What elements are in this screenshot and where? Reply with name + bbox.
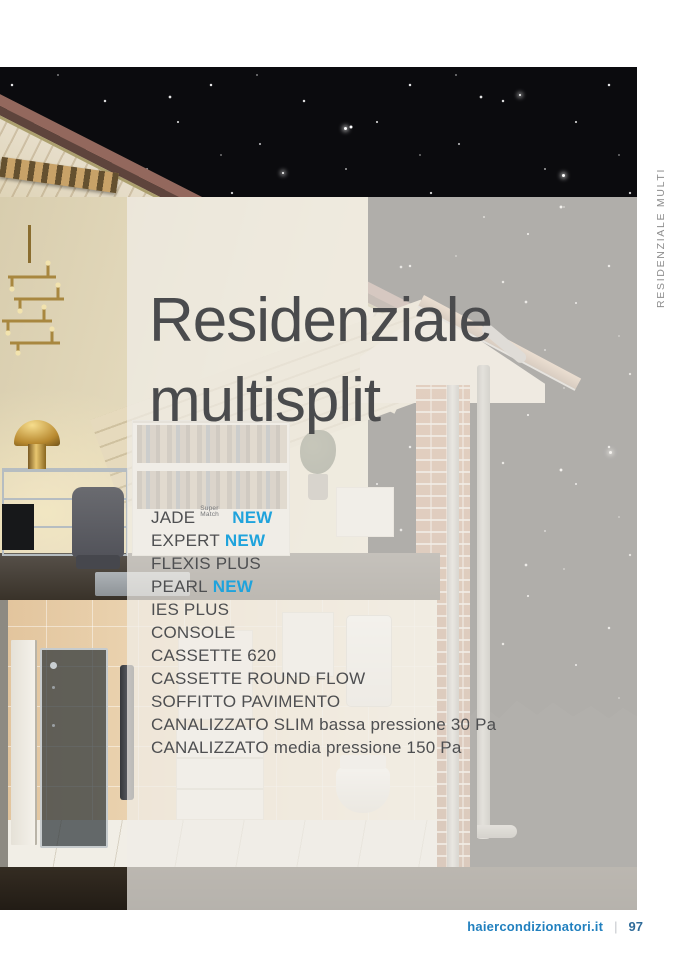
product-list: JADESuper MatchNEW EXPERTNEW FLEXIS PLUS… <box>151 506 496 759</box>
product-name: CANALIZZATO <box>151 738 269 757</box>
product-name: CASSETTE 620 <box>151 646 276 665</box>
side-section-label: RESIDENZIALE MULTI <box>655 168 667 308</box>
footer: haiercondizionatori.it | 97 <box>467 919 643 934</box>
website-link[interactable]: haiercondizionatori.it <box>467 919 603 934</box>
product-name: EXPERT <box>151 531 220 550</box>
dark-screen <box>2 504 34 550</box>
bathroom-door <box>11 640 37 845</box>
house-cross-section-photo <box>0 67 637 910</box>
page-number: 97 <box>629 919 643 934</box>
product-list-item: EXPERTNEW <box>151 529 496 552</box>
gold-lamp-base <box>28 444 46 469</box>
page-title-line2: multisplit <box>149 361 492 441</box>
product-list-item: CASSETTE ROUND FLOW <box>151 667 496 690</box>
product-list-item: CONSOLE <box>151 621 496 644</box>
bright-star <box>282 172 284 174</box>
product-list-item: CANALIZZATOmedia pressione 150 Pa <box>151 736 496 759</box>
product-list-item: CANALIZZATO SLIMbassa pressione 30 Pa <box>151 713 496 736</box>
product-name: FLEXIS PLUS <box>151 554 261 573</box>
product-name: JADE <box>151 508 195 527</box>
page-title-line1: Residenziale <box>149 281 492 361</box>
new-badge: NEW <box>232 508 272 527</box>
product-superscript: Super Match <box>200 506 227 518</box>
armchair <box>72 487 124 557</box>
footer-separator: | <box>614 919 617 934</box>
product-name: CANALIZZATO SLIM <box>151 715 314 734</box>
product-list-item: CASSETTE 620 <box>151 644 496 667</box>
product-list-item: PEARLNEW <box>151 575 496 598</box>
new-badge: NEW <box>225 531 265 550</box>
bright-star <box>562 174 565 177</box>
product-detail: media pressione 150 Pa <box>274 738 462 757</box>
brass-chandelier <box>0 225 70 365</box>
product-list-item: JADESuper MatchNEW <box>151 506 496 529</box>
product-name: IES PLUS <box>151 600 229 619</box>
product-name: PEARL <box>151 577 208 596</box>
bright-star <box>344 127 347 130</box>
product-list-item: SOFFITTO PAVIMENTO <box>151 690 496 713</box>
product-name: SOFFITTO PAVIMENTO <box>151 692 340 711</box>
new-badge: NEW <box>213 577 253 596</box>
product-list-item: FLEXIS PLUS <box>151 552 496 575</box>
product-name: CASSETTE ROUND FLOW <box>151 669 365 688</box>
bright-star <box>519 94 521 96</box>
concrete-edge <box>0 600 8 867</box>
product-name: CONSOLE <box>151 623 236 642</box>
product-detail: bassa pressione 30 Pa <box>319 715 496 734</box>
product-list-item: IES PLUS <box>151 598 496 621</box>
shower-enclosure <box>40 648 108 848</box>
page-title: Residenziale multisplit <box>149 281 492 441</box>
catalog-page: Residenziale multisplit JADESuper MatchN… <box>0 0 678 959</box>
